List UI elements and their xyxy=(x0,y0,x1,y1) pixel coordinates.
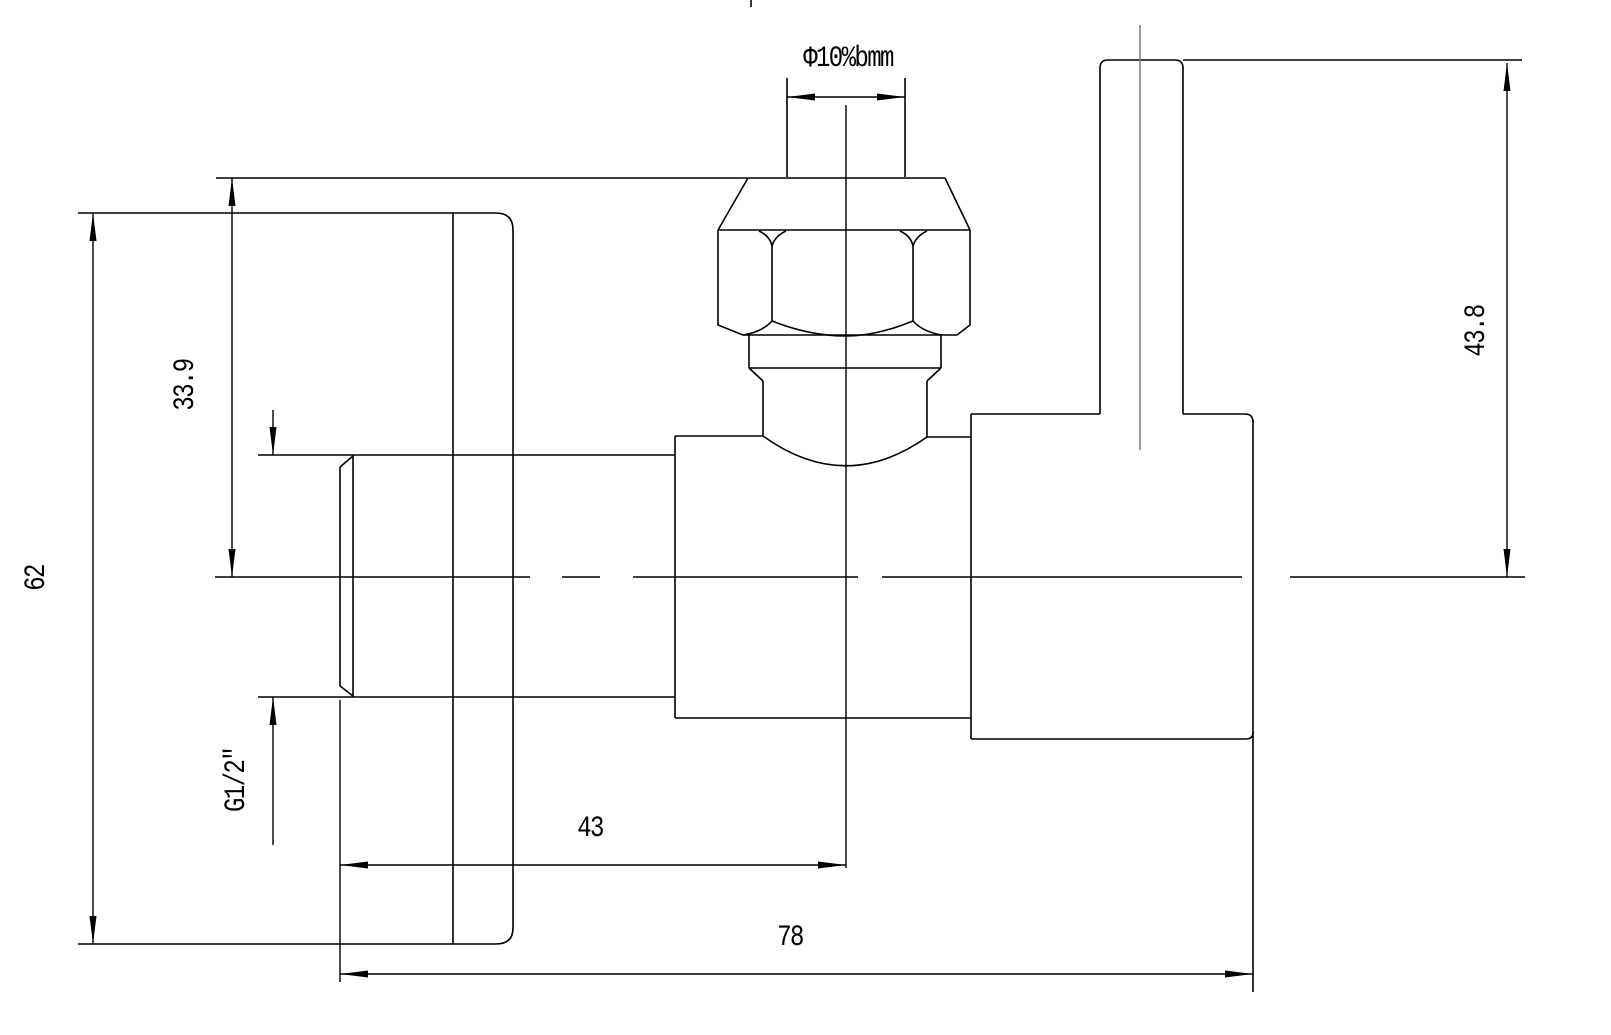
technical-drawing xyxy=(0,0,1611,1035)
outlet-block xyxy=(971,414,1253,992)
dim-top-diameter-label: Φ10%bmm xyxy=(803,42,893,76)
dim-overall-width-label: 78 xyxy=(777,921,803,955)
dim-outlet-height-label: 43.8 xyxy=(1460,305,1494,356)
dim-inlet-offset-label: 43 xyxy=(577,812,603,846)
dim-nut-height-label: 33.9 xyxy=(169,359,203,410)
inlet-pipe-top xyxy=(751,0,905,177)
compression-nut xyxy=(216,178,970,437)
arrowheads xyxy=(90,63,1511,978)
dim-overall-height-label: 62 xyxy=(20,565,54,591)
outlet-pipe xyxy=(1100,25,1522,450)
dim-thread-size-label: G1/2" xyxy=(220,748,254,812)
drawing-canvas: Φ10%bmm 33.9 62 G1/2" 43.8 43 78 xyxy=(0,0,1611,1035)
thread-connection xyxy=(258,455,675,697)
handle-outline xyxy=(78,213,513,944)
dimension-lines xyxy=(93,63,1507,982)
centerlines xyxy=(215,105,1525,868)
